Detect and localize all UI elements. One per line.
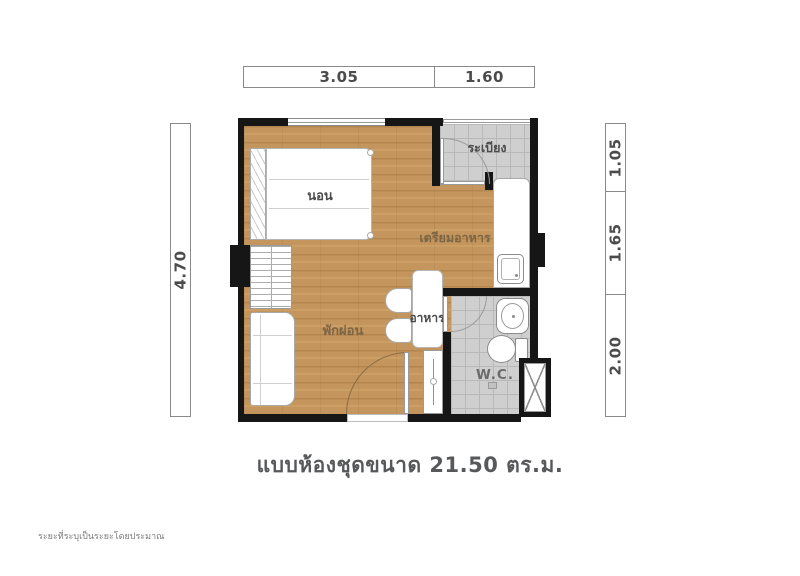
bed-corner-post-top bbox=[367, 149, 374, 156]
wall-bottom-left bbox=[238, 414, 347, 422]
service-shaft bbox=[519, 358, 551, 417]
sofa-backrest-line bbox=[260, 315, 261, 405]
wall-bottom-wc bbox=[445, 414, 521, 422]
closet-handle-knob bbox=[430, 378, 437, 385]
bed-blanket-line bbox=[269, 179, 369, 180]
dimension-right-seg-3: 2.00 bbox=[606, 294, 625, 416]
entry-closet bbox=[423, 350, 443, 414]
plan-caption: แบบห้องชุดขนาด 21.50 ตร.ม. bbox=[110, 449, 710, 482]
sofa-cushion-line bbox=[253, 335, 292, 336]
wc-door-leaf bbox=[443, 296, 448, 332]
floor-plan: นอน พักผ่อน เตรียมอาหาร อาหาร bbox=[238, 118, 557, 422]
toilet-bowl bbox=[487, 335, 516, 363]
balcony-railing bbox=[443, 119, 535, 123]
wardrobe bbox=[250, 245, 292, 309]
entrance-door-leaf bbox=[404, 352, 409, 414]
sofa-cushion-line-2 bbox=[253, 383, 292, 384]
dimension-right-seg-2: 1.65 bbox=[606, 191, 625, 294]
kitchen-sink bbox=[497, 254, 524, 284]
wc-sink-drain bbox=[512, 315, 515, 318]
dimension-bar-right: 1.05 1.65 2.00 bbox=[605, 123, 626, 417]
kitchen-sink-drain bbox=[515, 274, 518, 277]
shaft-cross-mark bbox=[524, 363, 546, 412]
dimension-top-width-2: 1.60 bbox=[434, 67, 534, 87]
bed-blanket-line-2 bbox=[269, 208, 369, 209]
wall-bottom-mid bbox=[408, 414, 445, 422]
window-top bbox=[288, 118, 385, 126]
wardrobe-divider bbox=[271, 246, 272, 308]
balcony-label: ระเบียง bbox=[447, 138, 527, 158]
window-glass-line bbox=[288, 122, 385, 123]
wc-sink-counter bbox=[496, 298, 529, 334]
dimension-top-width-1: 3.05 bbox=[244, 67, 434, 87]
bed-corner-post-bottom bbox=[367, 232, 374, 239]
entrance-threshold bbox=[347, 414, 408, 422]
wall-wc-left bbox=[443, 332, 451, 414]
bed-headboard bbox=[250, 148, 266, 240]
bedroom-label: นอน bbox=[280, 185, 360, 206]
dimension-right-seg-1: 1.05 bbox=[606, 124, 625, 191]
wall-kitchen-wc bbox=[443, 288, 538, 296]
wall-balcony-left bbox=[432, 118, 440, 186]
dimension-bar-top: 3.05 1.60 bbox=[243, 66, 535, 88]
sofa bbox=[250, 312, 295, 406]
dimension-left-height: 4.70 bbox=[171, 124, 190, 416]
disclaimer-footnote: ระยะที่ระบุเป็นระยะโดยประมาณ bbox=[38, 529, 164, 543]
dimension-bar-left: 4.70 bbox=[170, 123, 191, 417]
wall-left-pier bbox=[230, 245, 250, 287]
floor-plan-page: 3.05 1.60 4.70 1.05 1.65 2.00 bbox=[0, 0, 800, 576]
wc-floor-drain bbox=[488, 382, 497, 389]
living-label: พักผ่อน bbox=[293, 320, 393, 341]
